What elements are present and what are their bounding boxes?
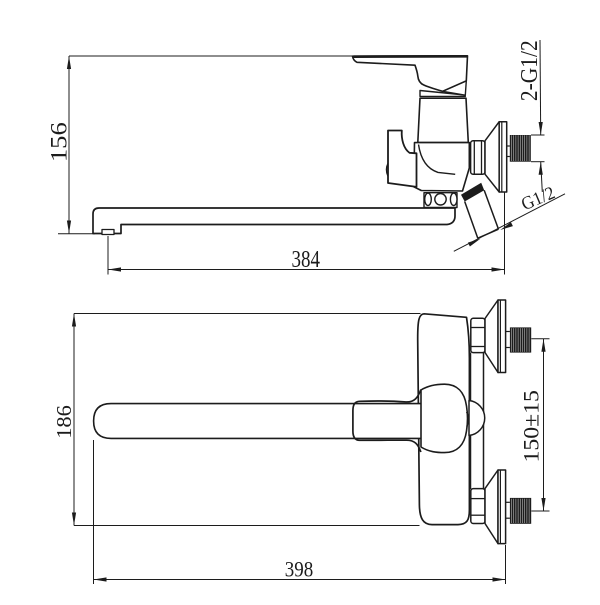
svg-text:2-G1/2: 2-G1/2 (516, 40, 544, 101)
svg-text:186: 186 (52, 405, 75, 439)
svg-text:384: 384 (292, 246, 321, 273)
svg-text:156: 156 (47, 122, 72, 162)
svg-text:150±15: 150±15 (518, 390, 543, 462)
svg-text:398: 398 (285, 558, 313, 581)
